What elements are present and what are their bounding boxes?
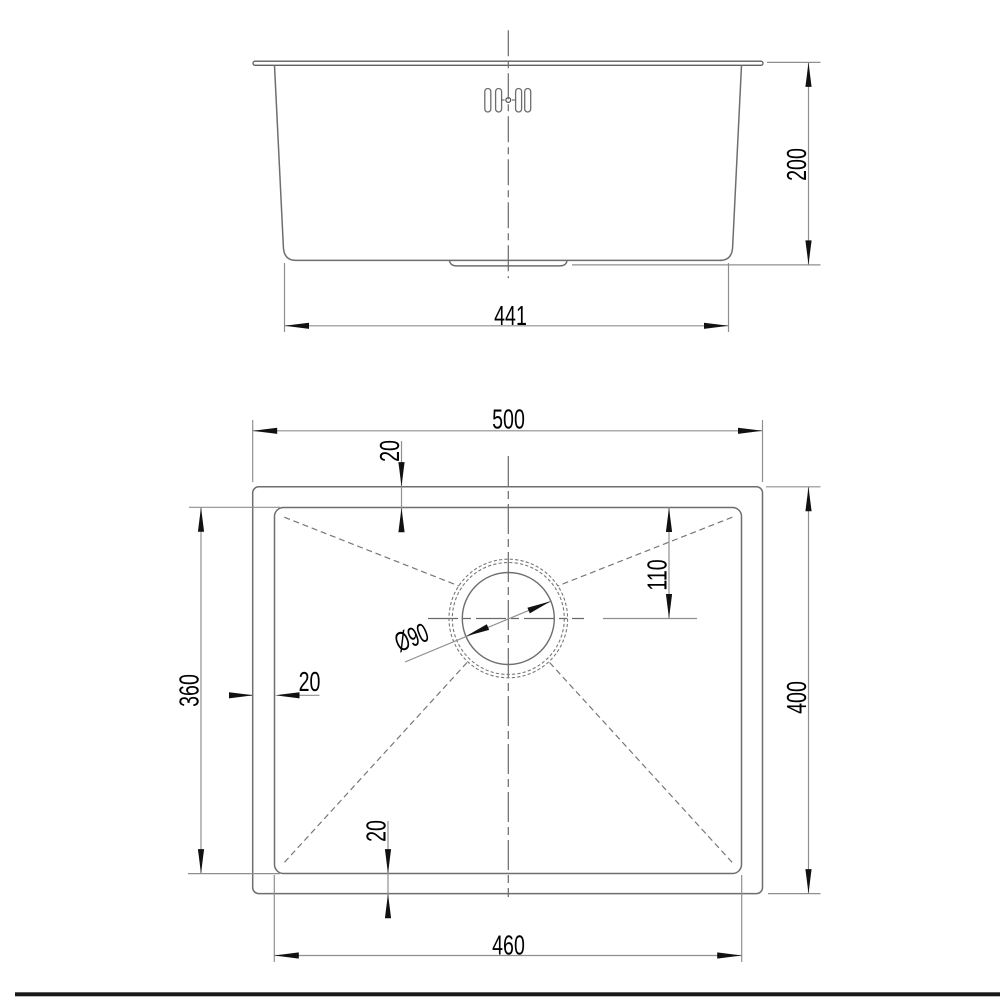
svg-text:200: 200 xyxy=(782,148,813,181)
svg-text:110: 110 xyxy=(642,559,673,590)
svg-text:441: 441 xyxy=(494,301,527,332)
svg-text:460: 460 xyxy=(492,930,525,961)
svg-text:20: 20 xyxy=(299,667,321,698)
svg-text:400: 400 xyxy=(782,681,813,714)
svg-text:500: 500 xyxy=(492,404,525,435)
svg-text:20: 20 xyxy=(361,820,392,842)
svg-text:360: 360 xyxy=(174,674,205,707)
svg-text:20: 20 xyxy=(375,440,406,462)
